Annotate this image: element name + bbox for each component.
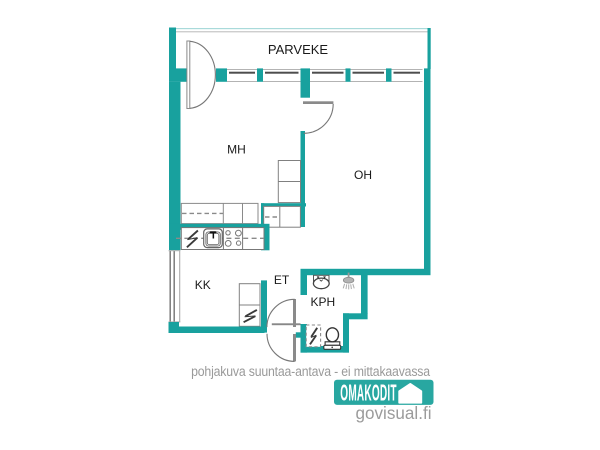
svg-text:KK: KK bbox=[195, 278, 211, 292]
svg-text:PARVEKE: PARVEKE bbox=[268, 42, 329, 57]
svg-text:pohjakuva suuntaa-antava - ei: pohjakuva suuntaa-antava - ei mittakaava… bbox=[191, 363, 431, 379]
svg-text:OH: OH bbox=[354, 168, 372, 182]
svg-text:govisual.fi: govisual.fi bbox=[356, 403, 432, 424]
svg-text:MH: MH bbox=[227, 143, 246, 157]
svg-text:ET: ET bbox=[274, 273, 290, 287]
svg-text:KPH: KPH bbox=[310, 295, 335, 309]
